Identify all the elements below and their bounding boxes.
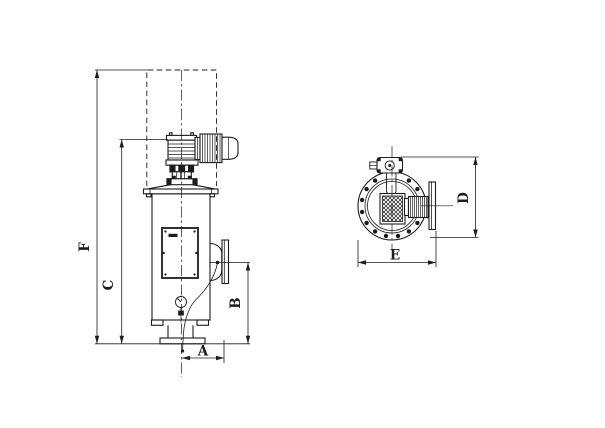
- dimension-E: E: [358, 248, 436, 265]
- head-flange: [144, 189, 219, 194]
- rivet: [164, 230, 166, 232]
- bottom-flange-right: [197, 320, 209, 325]
- dimension-A: A: [182, 344, 224, 361]
- dim-label-c: C: [101, 279, 117, 290]
- front-elevation-view: [144, 70, 239, 377]
- dim-label-f: F: [77, 242, 93, 252]
- dim-label-a: A: [197, 344, 209, 360]
- dim-label-e: E: [390, 248, 400, 264]
- motor-end-cap: [222, 137, 238, 159]
- dimension-B: B: [228, 263, 250, 344]
- coupling-stack: [166, 160, 198, 185]
- dimension-F: F: [77, 70, 99, 344]
- nameplate-mark: [169, 234, 178, 237]
- outlet-flange: [222, 240, 229, 284]
- dimension-C: C: [101, 140, 124, 344]
- gearbox-top: [380, 194, 405, 225]
- dim-label-d: D: [456, 192, 472, 204]
- technical-drawing: F C B A D: [0, 0, 605, 428]
- gauge-valve: [179, 311, 184, 315]
- dim-label-b: B: [228, 297, 244, 308]
- drive-assembly: [166, 133, 238, 185]
- top-plan-view: [358, 146, 453, 251]
- drawing-canvas: F C B A D: [0, 0, 605, 428]
- top-fitting: [370, 158, 403, 174]
- dimension-D: D: [456, 157, 478, 238]
- arrowhead: [95, 70, 99, 78]
- bottom-flange-left: [152, 320, 164, 325]
